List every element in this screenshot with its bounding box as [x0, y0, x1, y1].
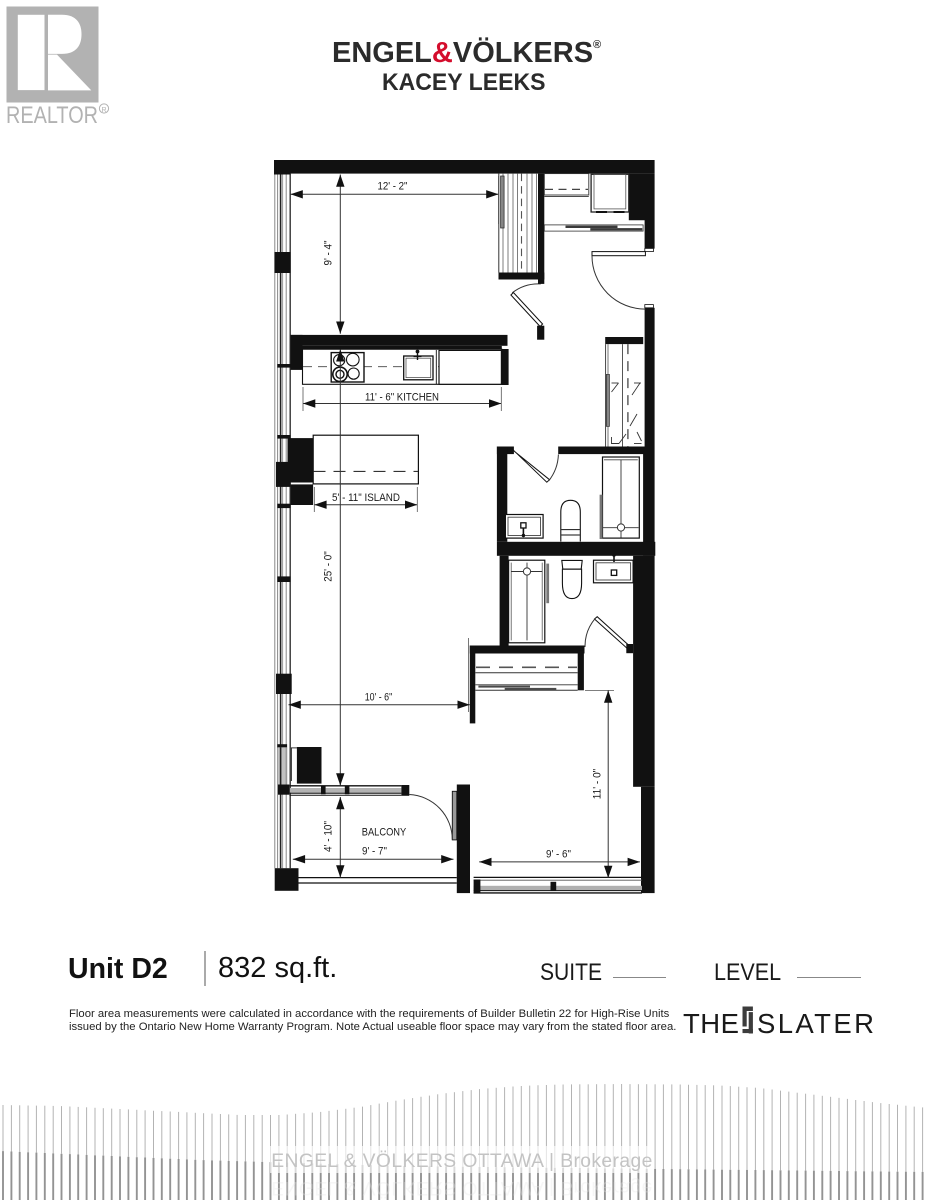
svg-text:9' - 7": 9' - 7": [362, 846, 387, 858]
svg-text:10' - 6": 10' - 6": [365, 692, 393, 704]
svg-text:25' - 0": 25' - 0": [323, 551, 335, 582]
svg-text:9' - 6": 9' - 6": [546, 848, 571, 860]
svg-text:12' - 2": 12' - 2": [378, 181, 408, 193]
svg-text:BALCONY: BALCONY: [362, 827, 407, 839]
svg-text:9' - 4": 9' - 4": [323, 240, 335, 265]
svg-text:4' - 10": 4' - 10": [323, 821, 335, 852]
svg-text:ENGEL & VÖLKERS OTTAWA | Broke: ENGEL & VÖLKERS OTTAWA | Brokerage: [271, 1150, 653, 1172]
svg-text:ENGEL & VÖLKERS OTTAWA | Broke: ENGEL & VÖLKERS OTTAWA | Brokerage: [271, 1177, 653, 1199]
svg-text:5' - 11" ISLAND: 5' - 11" ISLAND: [332, 492, 400, 504]
svg-text:11' - 0": 11' - 0": [592, 769, 604, 800]
svg-text:11' - 6" KITCHEN: 11' - 6" KITCHEN: [365, 391, 439, 403]
